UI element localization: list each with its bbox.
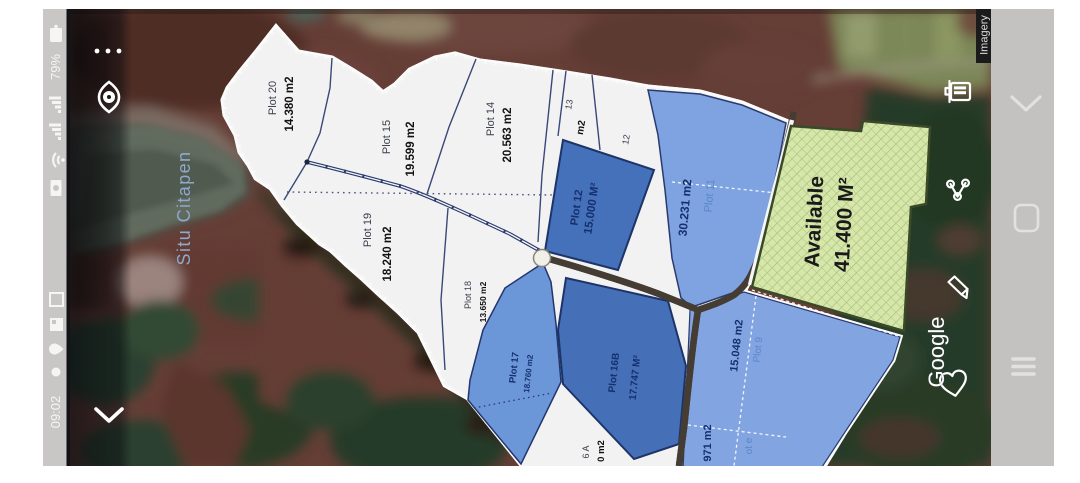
svg-text:Google: Google bbox=[924, 317, 949, 388]
svg-text:20.563 m2: 20.563 m2 bbox=[502, 108, 514, 163]
svg-text:Plot 18: Plot 18 bbox=[463, 281, 473, 309]
svg-text:13: 13 bbox=[563, 99, 575, 111]
svg-text:ot e: ot e bbox=[744, 437, 755, 454]
svg-text:Plot 14: Plot 14 bbox=[485, 102, 497, 136]
svg-text:18.240 m2: 18.240 m2 bbox=[382, 227, 394, 282]
svg-text:19.599 m2: 19.599 m2 bbox=[405, 122, 417, 177]
svg-text:13.650 m2: 13.650 m2 bbox=[478, 281, 488, 322]
svg-text:0 m2: 0 m2 bbox=[596, 440, 607, 462]
svg-text:79%: 79% bbox=[48, 54, 63, 80]
svg-text:6 A: 6 A bbox=[581, 445, 591, 458]
svg-text:Plot 19: Plot 19 bbox=[362, 213, 374, 247]
svg-text:Situ Citapen: Situ Citapen bbox=[174, 151, 194, 266]
svg-text:Available: Available bbox=[801, 175, 829, 268]
svg-text:09:02: 09:02 bbox=[48, 396, 63, 429]
svg-text:Plot 15: Plot 15 bbox=[381, 120, 393, 154]
svg-text:14.380 m2: 14.380 m2 bbox=[284, 77, 296, 132]
svg-text:Imagery: Imagery bbox=[979, 15, 991, 55]
svg-text:971 m2: 971 m2 bbox=[702, 424, 714, 461]
svg-text:Plot 20: Plot 20 bbox=[267, 81, 279, 115]
svg-text:12: 12 bbox=[620, 134, 632, 146]
